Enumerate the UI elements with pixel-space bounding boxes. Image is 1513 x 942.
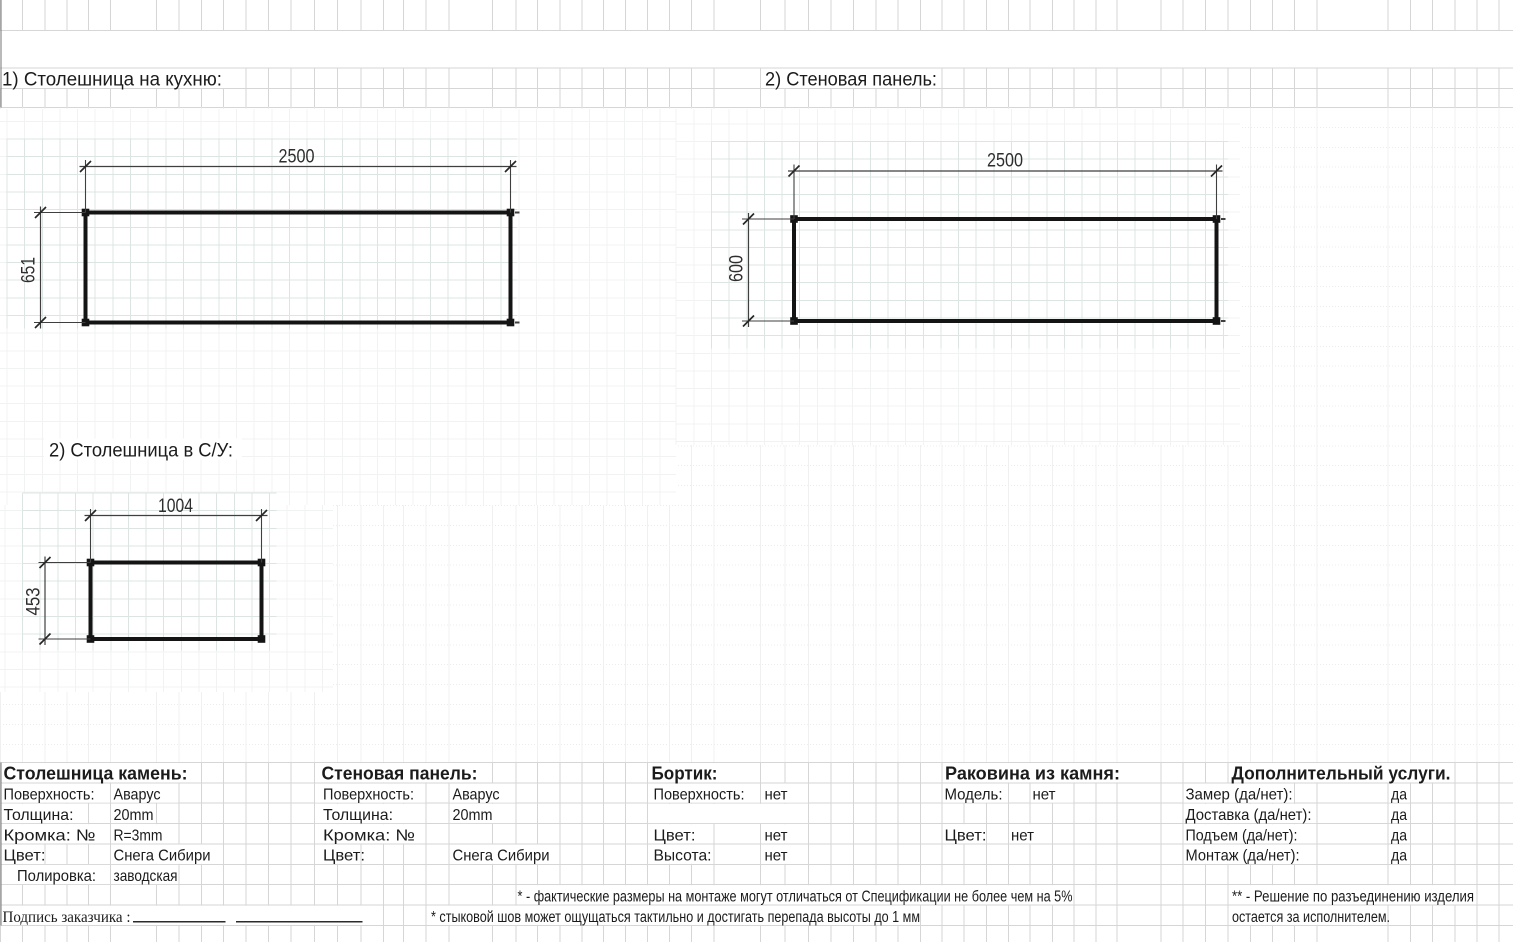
svg-text:остается за исполнителем.: остается за исполнителем. [1232,909,1390,926]
svg-text:651: 651 [19,257,40,283]
svg-text:да: да [1391,787,1407,804]
svg-text:Стеновая панель:: Стеновая панель: [322,763,478,783]
svg-text:2) Стеновая панель:: 2) Стеновая панель: [765,69,937,91]
svg-text:2500: 2500 [987,151,1023,172]
svg-text:1004: 1004 [158,496,193,517]
svg-text:Модель:: Модель: [945,787,1003,804]
svg-text:Аварус: Аварус [114,787,161,804]
svg-text:Поверхность:: Поверхность: [4,787,95,804]
svg-text:Аварус: Аварус [453,787,500,804]
svg-text:2500: 2500 [279,147,315,168]
svg-text:нет: нет [1033,787,1057,804]
svg-text:Цвет:: Цвет: [323,848,365,865]
svg-text:Поверхность:: Поверхность: [654,787,745,804]
svg-text:20mm: 20mm [114,807,154,824]
svg-text:* - фактические размеры на мон: * - фактические размеры на монтаже могут… [518,888,1073,905]
svg-text:Столешница камень:: Столешница камень: [4,763,188,783]
svg-text:Бортик:: Бортик: [652,763,718,783]
svg-text:2) Столешница в С/У:: 2) Столешница в С/У: [49,440,233,462]
svg-text:* стыковой шов может ощущаться: * стыковой шов может ощущаться тактильно… [431,909,920,926]
svg-text:** - Решение по разъединению и: ** - Решение по разъединению изделия [1232,888,1474,905]
svg-text:Толщина:: Толщина: [323,807,393,824]
svg-text:Полировка:: Полировка: [17,868,96,885]
svg-text:Монтаж (да/нет):: Монтаж (да/нет): [1186,848,1300,865]
svg-text:R=3mm: R=3mm [114,827,163,844]
svg-text:Замер (да/нет):: Замер (да/нет): [1186,787,1293,804]
svg-text:Дополнительный услуги.: Дополнительный услуги. [1232,763,1451,783]
svg-text:нет: нет [765,827,789,844]
svg-text:Поверхность:: Поверхность: [323,787,414,804]
svg-text:Доставка (да/нет):: Доставка (да/нет): [1186,807,1312,824]
svg-text:Толщина:: Толщина: [4,807,74,824]
svg-text:Снега Сибири: Снега Сибири [114,848,211,865]
svg-text:нет: нет [765,787,789,804]
svg-text:20mm: 20mm [453,807,493,824]
svg-text:нет: нет [1011,827,1035,844]
svg-text:нет: нет [765,848,789,865]
svg-text:Подпись заказчика :: Подпись заказчика : [3,909,131,926]
svg-text:453: 453 [24,588,45,616]
svg-text:Цвет:: Цвет: [4,848,46,865]
svg-text:да: да [1391,848,1407,865]
svg-text:да: да [1391,807,1407,824]
svg-text:Кромка: №: Кромка: № [323,827,415,844]
svg-text:Снега Сибири: Снега Сибири [453,848,550,865]
svg-text:заводская: заводская [114,868,178,885]
svg-text:Подъем (да/нет):: Подъем (да/нет): [1186,827,1298,844]
svg-text:600: 600 [727,255,748,282]
svg-text:Цвет:: Цвет: [945,827,987,844]
svg-text:1) Столешница на кухню:: 1) Столешница на кухню: [2,69,222,91]
svg-text:да: да [1391,827,1407,844]
svg-text:Раковина из камня:: Раковина из камня: [945,763,1120,783]
svg-text:Цвет:: Цвет: [654,827,696,844]
svg-text:Высота:: Высота: [654,848,712,865]
svg-text:Кромка: №: Кромка: № [4,827,96,844]
